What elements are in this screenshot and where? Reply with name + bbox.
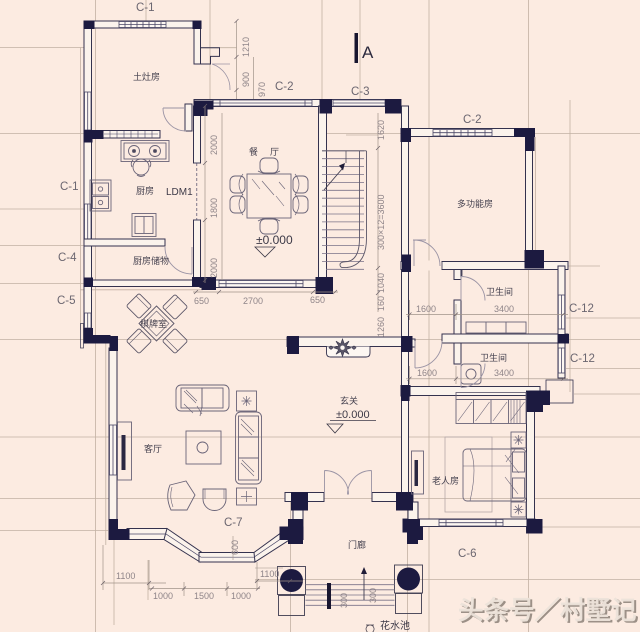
svg-text:C-12: C-12	[570, 353, 595, 365]
svg-text:C-3: C-3	[351, 86, 370, 98]
svg-text:C-6: C-6	[458, 548, 477, 560]
svg-text:160: 160	[376, 296, 386, 311]
svg-text:2000: 2000	[209, 258, 219, 278]
svg-text:1500: 1500	[194, 591, 214, 601]
svg-text:300: 300	[368, 588, 378, 603]
svg-text:老人房: 老人房	[432, 475, 459, 486]
svg-text:1800: 1800	[209, 198, 219, 218]
svg-text:花水池: 花水池	[380, 619, 410, 632]
svg-text:玄关: 玄关	[340, 395, 358, 406]
svg-text:C-5: C-5	[57, 295, 76, 307]
svg-text:头条号／村墅记: 头条号／村墅记	[458, 596, 637, 625]
svg-text:厨房储物: 厨房储物	[133, 255, 169, 266]
svg-text:1100: 1100	[260, 569, 279, 579]
svg-text:1620: 1620	[376, 120, 386, 140]
svg-text:1100: 1100	[116, 571, 135, 581]
svg-text:1000: 1000	[153, 591, 173, 601]
svg-text:3400: 3400	[494, 368, 514, 378]
svg-text:客厅: 客厅	[144, 443, 162, 454]
svg-text:3400: 3400	[494, 304, 514, 314]
svg-text:C-1: C-1	[136, 2, 155, 14]
svg-text:土灶房: 土灶房	[133, 71, 160, 82]
svg-text:C-12: C-12	[569, 303, 594, 315]
svg-text:±0.000: ±0.000	[256, 233, 293, 247]
svg-text:650: 650	[194, 296, 209, 306]
svg-text:1600: 1600	[417, 368, 437, 378]
svg-text:卫生间: 卫生间	[486, 286, 513, 297]
svg-text:A: A	[362, 43, 374, 62]
svg-text:棋牌室: 棋牌室	[140, 318, 167, 329]
svg-text:900: 900	[241, 72, 251, 87]
svg-text:1210: 1210	[241, 37, 251, 57]
svg-text:LDM1: LDM1	[166, 187, 193, 198]
svg-text:2000: 2000	[209, 135, 219, 155]
svg-text:C-4: C-4	[58, 252, 77, 264]
svg-text:卫生间: 卫生间	[480, 352, 507, 363]
svg-text:300×12=3600: 300×12=3600	[376, 194, 386, 250]
svg-text:C-7: C-7	[224, 517, 243, 529]
svg-text:600: 600	[230, 540, 240, 555]
svg-text:1260: 1260	[376, 317, 386, 337]
svg-text:C-2: C-2	[275, 81, 294, 93]
svg-text:1000: 1000	[231, 591, 251, 601]
svg-text:厨房: 厨房	[136, 185, 154, 196]
svg-text:300: 300	[339, 593, 349, 608]
svg-text:多功能房: 多功能房	[457, 198, 493, 209]
svg-text:650: 650	[310, 295, 325, 305]
svg-text:970: 970	[257, 82, 267, 97]
svg-text:±0.000: ±0.000	[336, 409, 370, 421]
svg-text:餐厅: 餐厅	[249, 146, 291, 157]
svg-text:2700: 2700	[243, 296, 263, 306]
svg-text:C-1: C-1	[60, 181, 79, 193]
svg-text:门廊: 门廊	[348, 539, 366, 550]
svg-text:1040: 1040	[376, 273, 386, 293]
svg-text:1600: 1600	[416, 304, 436, 314]
svg-text:C-2: C-2	[463, 114, 482, 126]
